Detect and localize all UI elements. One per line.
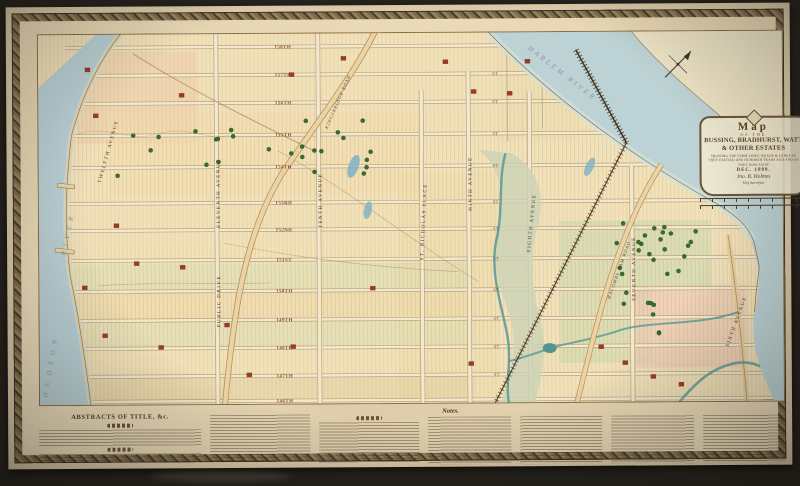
tree-icon bbox=[289, 151, 293, 155]
tree-icon bbox=[657, 331, 661, 335]
tree-icon bbox=[341, 136, 345, 140]
tree-icon bbox=[621, 221, 625, 225]
cartouche-signature-title: City Surveyor bbox=[702, 180, 800, 186]
cartouche-subtitle: SHOWING THE FARM LINES, ROADS & LANES AS… bbox=[701, 153, 800, 168]
tree-icon bbox=[663, 247, 667, 251]
building bbox=[85, 68, 90, 72]
scale-bars bbox=[700, 198, 800, 213]
section-ornament bbox=[107, 448, 133, 452]
building bbox=[114, 224, 119, 228]
tree-icon bbox=[319, 149, 323, 153]
tree-icon bbox=[362, 172, 366, 176]
street-label: 152ND bbox=[276, 228, 293, 233]
tree-icon bbox=[622, 302, 626, 306]
tree-icon bbox=[365, 165, 369, 169]
tree-icon bbox=[369, 150, 373, 154]
tree-icon bbox=[643, 233, 647, 237]
scale-bar bbox=[700, 205, 800, 210]
avenue-label: ELEVENTH AVENUE bbox=[217, 158, 222, 228]
street-stub-label: ST bbox=[493, 163, 499, 168]
street-label: 151ST bbox=[276, 258, 292, 263]
street-stub-label: ST bbox=[493, 287, 499, 292]
street-label: 154TH bbox=[275, 165, 292, 170]
section-ornament bbox=[356, 416, 382, 420]
mat-smudge bbox=[150, 470, 290, 482]
tree-icon bbox=[662, 225, 666, 229]
tree-icon bbox=[649, 301, 653, 305]
street-stub-label: ST bbox=[493, 256, 499, 261]
abstracts-title: ABSTRACTS OF TITLE, &c. bbox=[39, 413, 201, 421]
street-stub-label: ST bbox=[493, 199, 499, 204]
building bbox=[93, 114, 98, 118]
building bbox=[623, 361, 628, 365]
building bbox=[525, 59, 530, 63]
building bbox=[225, 323, 230, 327]
abstracts-column-2 bbox=[210, 407, 310, 469]
tree-icon bbox=[694, 229, 698, 233]
tree-icon bbox=[652, 226, 656, 230]
tree-icon bbox=[361, 119, 365, 123]
building bbox=[341, 56, 346, 60]
street-label: 155TH bbox=[275, 133, 292, 138]
notes-section: Notes. bbox=[428, 404, 785, 467]
tree-icon bbox=[214, 137, 218, 141]
tree-icon bbox=[615, 241, 619, 245]
building bbox=[134, 262, 139, 266]
building bbox=[179, 93, 184, 97]
tree-icon bbox=[661, 230, 665, 234]
cartouche-names2: & OTHER ESTATES bbox=[701, 145, 800, 154]
tree-icon bbox=[300, 155, 304, 159]
tree-icon bbox=[669, 231, 673, 235]
street-label: 157TH bbox=[275, 73, 292, 78]
tree-icon bbox=[659, 237, 663, 241]
building bbox=[247, 373, 252, 377]
tree-icon bbox=[204, 163, 208, 167]
abstracts-column-3 bbox=[319, 406, 419, 468]
street-label: 158TH bbox=[274, 45, 291, 50]
building bbox=[469, 362, 474, 366]
street-stub-label: ST bbox=[494, 372, 500, 377]
street-label: 156TH bbox=[275, 101, 292, 106]
building bbox=[599, 345, 604, 349]
street-label: 148TH bbox=[276, 346, 293, 351]
tree-icon bbox=[193, 129, 197, 133]
street-stub-label: ST bbox=[492, 131, 498, 136]
tree-icon bbox=[116, 174, 120, 178]
avenue-label: TENTH AVENUE bbox=[319, 173, 324, 228]
paper-inner: 158TH157THST156THST155THST154THST153RDST… bbox=[20, 17, 779, 456]
tree-icon bbox=[312, 149, 316, 153]
estate-map-svg: 158TH157THST156THST155THST154THST153RDST… bbox=[37, 30, 785, 407]
notes-column bbox=[428, 416, 511, 465]
building bbox=[679, 382, 684, 386]
abstracts-paragraph bbox=[39, 453, 201, 462]
map-area: 158TH157THST156THST155THST154THST153RDST… bbox=[37, 30, 785, 407]
tree-icon bbox=[131, 134, 135, 138]
pond bbox=[543, 343, 557, 353]
tree-icon bbox=[231, 134, 235, 138]
street-stub-label: ST bbox=[492, 99, 498, 104]
abstracts-column: ABSTRACTS OF TITLE, &c. bbox=[39, 407, 201, 469]
notes-column bbox=[520, 416, 603, 465]
street-label: 150TH bbox=[276, 289, 293, 294]
tree-icon bbox=[682, 254, 686, 258]
avenue-label: NINTH AVENUE bbox=[469, 156, 474, 210]
street-stub-label: ST bbox=[492, 71, 498, 76]
building bbox=[651, 374, 656, 378]
building bbox=[180, 265, 185, 269]
tree-icon bbox=[336, 130, 340, 134]
street-label: 149TH bbox=[276, 318, 293, 323]
tree-icon bbox=[652, 258, 656, 262]
street-label: 153RD bbox=[275, 201, 292, 206]
text-paragraph bbox=[319, 422, 419, 463]
tree-icon bbox=[157, 135, 161, 139]
street-stub-label: ST bbox=[494, 316, 500, 321]
bottom-text-band: ABSTRACTS OF TITLE, &c. Notes. bbox=[39, 404, 785, 470]
street-stub-label: ST bbox=[494, 344, 500, 349]
building bbox=[82, 286, 87, 290]
tree-icon bbox=[149, 148, 153, 152]
scale-bar bbox=[700, 198, 800, 203]
photographed-map: 158TH157THST156THST155THST154THST153RDST… bbox=[0, 0, 800, 486]
tree-icon bbox=[365, 158, 369, 162]
tree-icon bbox=[677, 269, 681, 273]
building bbox=[471, 90, 476, 94]
text-paragraph bbox=[210, 415, 310, 462]
building bbox=[370, 286, 375, 290]
street-label: 147TH bbox=[276, 374, 293, 379]
notes-column bbox=[611, 415, 694, 464]
tree-icon bbox=[637, 248, 641, 252]
building bbox=[507, 91, 512, 95]
tree-icon bbox=[267, 147, 271, 151]
tree-icon bbox=[229, 128, 233, 132]
map-sheet: 158TH157THST156THST155THST154THST153RDST… bbox=[6, 3, 793, 470]
street-stub-label: ST bbox=[493, 226, 499, 231]
building bbox=[159, 345, 164, 349]
building bbox=[103, 334, 108, 338]
tree-icon bbox=[665, 272, 669, 276]
tree-icon bbox=[686, 244, 690, 248]
section-ornament bbox=[107, 424, 133, 428]
tree-icon bbox=[620, 272, 624, 276]
cartouche-map-word: Map bbox=[701, 122, 800, 133]
avenue-label: SEVENTH AVENUE bbox=[632, 236, 637, 301]
notes-title: Notes. bbox=[442, 406, 785, 415]
notes-column bbox=[703, 415, 786, 464]
building bbox=[443, 60, 448, 64]
abstracts-paragraph bbox=[39, 429, 201, 446]
woven-border: 158TH157THST156THST155THST154THST153RDST… bbox=[12, 9, 787, 464]
tree-icon bbox=[300, 145, 304, 149]
tree-icon bbox=[651, 312, 655, 316]
tree-icon bbox=[689, 240, 693, 244]
title-cartouche: Map OF THE BUSSING, BRADHURST, WATT & OT… bbox=[699, 116, 800, 197]
avenue-label: PUBLIC DRIVE bbox=[217, 275, 222, 327]
tree-icon bbox=[312, 170, 316, 174]
tree-icon bbox=[624, 291, 628, 295]
tree-icon bbox=[647, 252, 651, 256]
tree-icon bbox=[304, 119, 308, 123]
